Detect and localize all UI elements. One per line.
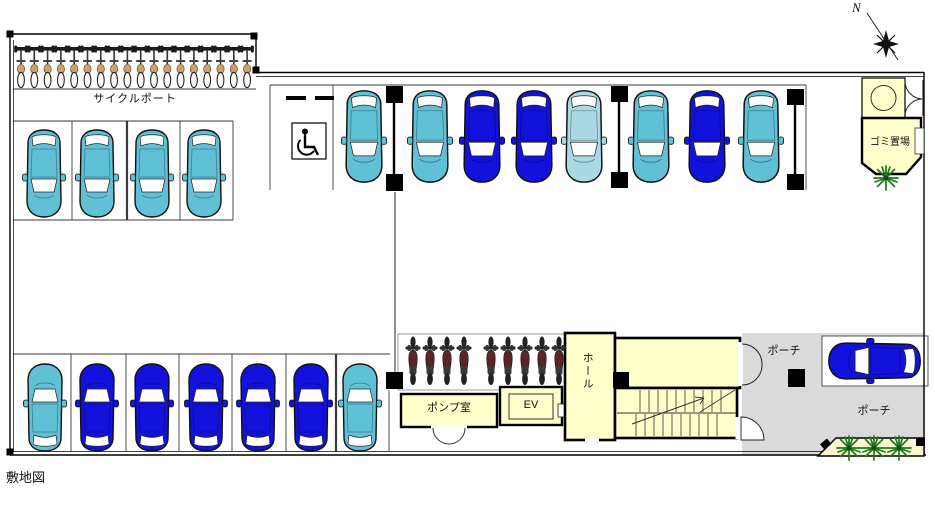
garbage-double-door-icon xyxy=(905,82,922,114)
pump-room-door-gap xyxy=(431,426,467,430)
pillar xyxy=(613,372,629,388)
bicycle xyxy=(174,46,188,88)
garbage-structure xyxy=(862,78,924,174)
pillar xyxy=(611,172,628,188)
car-blue xyxy=(290,364,333,451)
bicycle xyxy=(240,46,254,88)
entrance-room xyxy=(615,338,740,388)
bicycle xyxy=(107,46,121,88)
bicycle xyxy=(121,46,135,88)
elevator-label: EV xyxy=(505,399,557,411)
garbage-anteroom xyxy=(862,78,905,118)
pump-room-door-icon xyxy=(433,428,465,444)
cycle-port-label: サイクルポート xyxy=(55,93,215,105)
stair-exit-door-gap xyxy=(736,417,741,439)
pillar xyxy=(386,372,403,389)
bicycle xyxy=(134,46,148,88)
car-cyan xyxy=(24,364,67,451)
bicycle xyxy=(14,46,28,88)
car-blue xyxy=(237,364,280,451)
site-plan-caption: 敷地図 xyxy=(6,471,45,485)
car-cyan_light xyxy=(561,91,606,182)
bicycle xyxy=(161,46,175,88)
car-blue xyxy=(459,91,504,182)
north-compass xyxy=(867,13,899,60)
pillar xyxy=(611,86,628,102)
car-blue xyxy=(511,91,556,182)
plant-icon xyxy=(874,166,898,190)
pillar xyxy=(787,174,804,190)
bicycle xyxy=(214,46,228,88)
car-cyan xyxy=(131,130,174,217)
car-cyan xyxy=(341,91,386,182)
pillar xyxy=(787,89,804,105)
car-cyan xyxy=(407,91,452,182)
garbage-room-label: ゴミ置場 xyxy=(858,137,922,148)
car-blue xyxy=(829,338,920,383)
bicycle xyxy=(94,46,108,88)
car-cyan xyxy=(339,364,382,451)
bicycle xyxy=(41,46,55,88)
car-cyan xyxy=(738,91,783,182)
car-blue xyxy=(131,364,174,451)
accessible-parking-marking xyxy=(286,96,334,159)
plant-icon xyxy=(837,436,861,460)
site-plan: サイクルポート ゴミ置場 ポンプ室 EV ホール ポーチ ポーチ N 敷地図 xyxy=(0,0,935,509)
plant-icon xyxy=(862,436,886,460)
bicycle xyxy=(54,46,68,88)
porch-lower-label: ポーチ xyxy=(843,405,905,417)
bicycle xyxy=(227,46,241,88)
site-plan-drawing xyxy=(0,0,935,509)
pump-room-label: ポンプ室 xyxy=(401,402,497,414)
pillar xyxy=(788,369,805,387)
bicycle xyxy=(187,46,201,88)
bicycle xyxy=(81,46,95,88)
car-blue xyxy=(76,364,119,451)
hall-door-gap xyxy=(585,437,599,443)
car-cyan xyxy=(23,130,66,217)
car-blue xyxy=(684,91,729,182)
car-blue xyxy=(185,364,228,451)
car-cyan xyxy=(76,130,119,217)
pillar xyxy=(386,174,403,191)
hall-label: ホール xyxy=(581,352,593,436)
car-cyan xyxy=(183,130,226,217)
pillar xyxy=(386,86,403,103)
bicycle xyxy=(67,46,81,88)
bicycle xyxy=(147,46,161,88)
compass-north-label: N xyxy=(852,1,861,15)
porch-door-gap xyxy=(738,342,743,386)
car-cyan xyxy=(628,91,673,182)
plant-icon xyxy=(887,436,911,460)
bicycle xyxy=(28,46,42,88)
porch-upper-label: ポーチ xyxy=(752,345,816,357)
bicycle xyxy=(200,46,214,88)
